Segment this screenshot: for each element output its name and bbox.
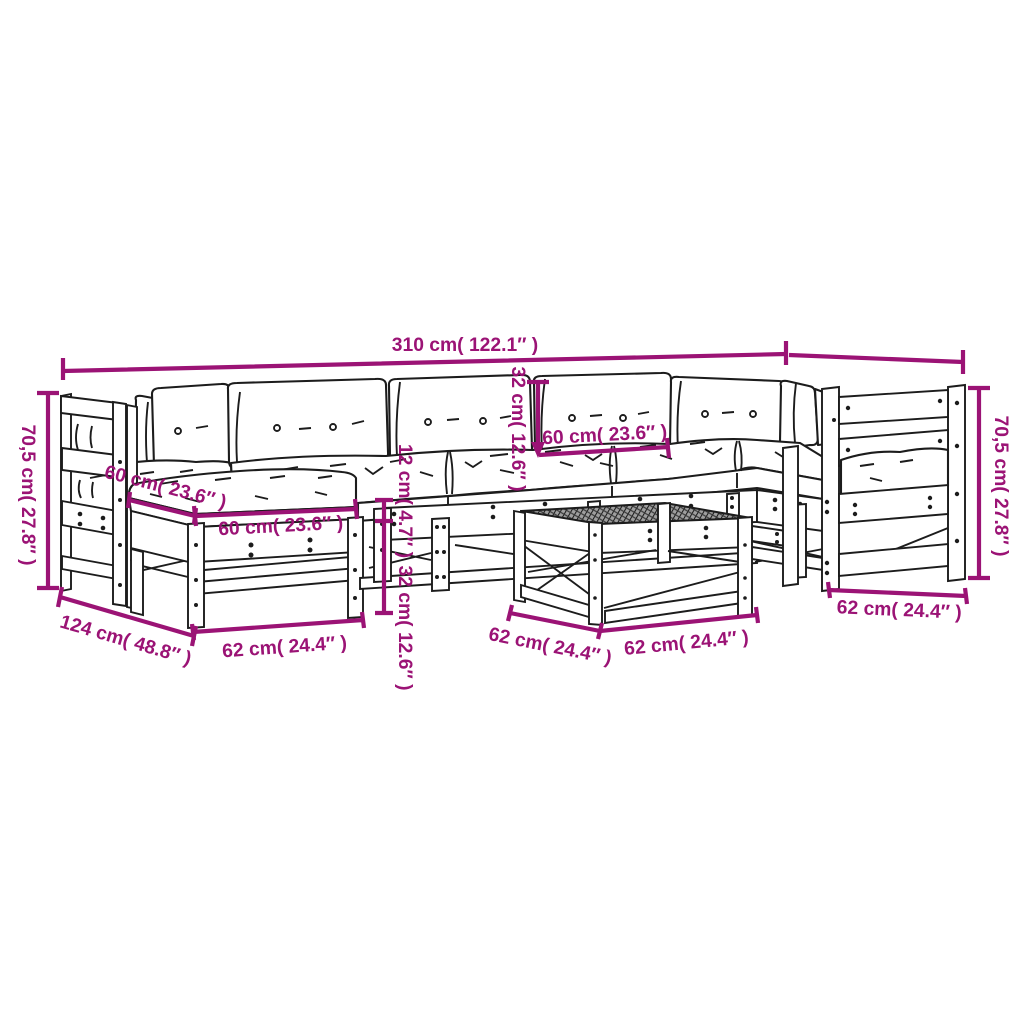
svg-text:12 cm( 4.7″ ): 12 cm( 4.7″ ) [394,444,415,558]
svg-text:32 cm( 12.6″ ): 32 cm( 12.6″ ) [507,367,528,492]
svg-text:70,5 cm( 27.8″ ): 70,5 cm( 27.8″ ) [990,415,1011,556]
svg-text:70,5 cm( 27.8″ ): 70,5 cm( 27.8″ ) [17,424,38,565]
svg-text:310 cm( 122.1″ ): 310 cm( 122.1″ ) [392,335,538,356]
svg-text:32 cm( 12.6″ ): 32 cm( 12.6″ ) [394,566,415,691]
